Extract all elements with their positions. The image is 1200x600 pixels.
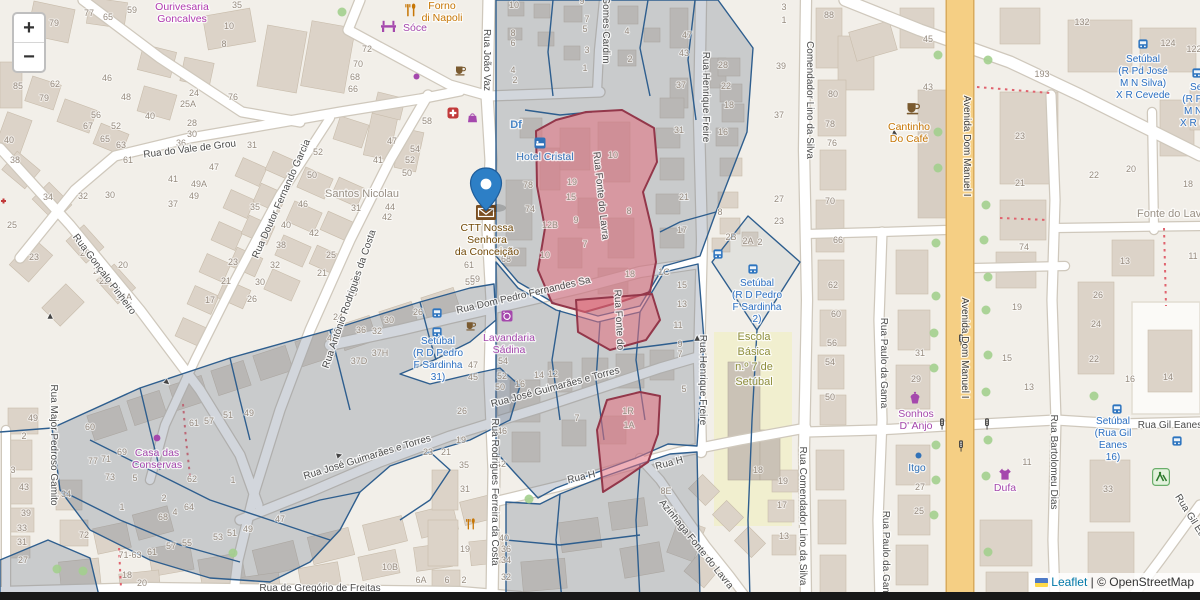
house-number: 41 [168, 174, 178, 184]
attribution-separator: | [1087, 575, 1097, 589]
house-number: 76 [228, 92, 238, 102]
street-label: Rua Gil Eanes [1138, 420, 1200, 431]
house-number: 26 [1093, 290, 1103, 300]
house-number: 47 [275, 514, 285, 524]
house-number: 77 [84, 8, 94, 18]
house-number: 37 [676, 80, 686, 90]
bottom-bar [0, 592, 1200, 600]
house-number: 50 [402, 168, 412, 178]
house-number: 68 [158, 512, 168, 522]
map-canvas: 85797765593510862794648566752402425A2830… [0, 0, 1200, 600]
house-number: 31 [17, 537, 27, 547]
poi-label: Dufa [994, 482, 1016, 494]
house-number: 16 [515, 379, 525, 389]
house-number: 12 [548, 369, 558, 379]
house-number: 10 [509, 0, 519, 10]
house-number: 65 [100, 134, 110, 144]
house-number: 26 [457, 406, 467, 416]
house-number: 3 [10, 465, 15, 475]
house-number: 33 [1103, 484, 1113, 494]
house-number: 14 [1163, 372, 1173, 382]
house-number: 23 [423, 447, 433, 457]
tree-icon [932, 292, 941, 301]
house-number: 12B [542, 220, 558, 230]
house-number: 20 [118, 260, 128, 270]
house-number: 49 [244, 408, 254, 418]
tree-icon [982, 472, 991, 481]
house-number: 8 [626, 206, 631, 216]
house-number: 48 [121, 92, 131, 102]
house-number: 80 [828, 89, 838, 99]
poi-label: Itgo [908, 462, 926, 474]
house-number: 54 [498, 356, 508, 366]
house-number: 32 [270, 260, 280, 270]
bus-stop-label: X R Cevede [1180, 118, 1200, 129]
house-number: 10 [224, 21, 234, 31]
poi-label: Lavandaria [483, 332, 535, 344]
house-number: 2B [725, 232, 736, 242]
poi-label: Cantinho [888, 121, 930, 133]
house-number: 24 [1091, 319, 1101, 329]
bus-stop-label: (R D Pedro [732, 290, 782, 301]
house-number: 34 [501, 555, 511, 565]
house-number: 26 [413, 307, 423, 317]
house-number: 30 [255, 277, 265, 287]
bus-stop-label: 2) [753, 314, 762, 325]
poi-label: n.º 7 de [735, 361, 773, 373]
zoom-out-button[interactable]: − [14, 43, 44, 71]
bus-stop-label: F Sardinha [414, 360, 463, 371]
house-number: 2 [161, 493, 166, 503]
house-number: 79 [49, 18, 59, 28]
house-number: 11 [1188, 251, 1197, 261]
house-number: 41 [373, 155, 383, 165]
house-number: 19 [1012, 302, 1022, 312]
house-number: 33 [17, 523, 27, 533]
house-number: 18 [724, 100, 734, 110]
house-number: 40 [145, 111, 155, 121]
house-number: 11 [673, 320, 682, 330]
tree-icon [984, 273, 993, 282]
tree-icon [930, 511, 939, 520]
tree-icon [1090, 392, 1099, 401]
tree-icon [338, 8, 347, 17]
bus-stop-label: (R Pd José [1182, 94, 1200, 105]
house-number: 65 [103, 12, 113, 22]
house-number: 32 [78, 191, 88, 201]
house-number: 5 [681, 384, 686, 394]
house-number: 51 [227, 528, 237, 538]
tree-icon [982, 306, 991, 315]
house-number: 18 [1183, 179, 1193, 189]
house-number: 18 [625, 269, 635, 279]
house-number: 6A [415, 575, 426, 585]
house-number: 132 [1074, 17, 1089, 27]
laundry-icon [502, 311, 513, 322]
house-number: 63 [116, 140, 126, 150]
house-number: 8E [660, 486, 671, 496]
house-number: 2 [757, 237, 762, 247]
house-number: 62 [50, 79, 60, 89]
house-number: 5 [132, 473, 137, 483]
house-number: 45 [468, 372, 478, 382]
house-number: 47 [209, 162, 219, 172]
street-label: Rua Rodrigues Ferreira da Costa [489, 418, 500, 566]
bus-stop-label: (Rua Gil [1095, 428, 1132, 439]
tree-icon [934, 128, 943, 137]
house-number: 17 [777, 500, 787, 510]
house-number: 22 [721, 81, 731, 91]
leaflet-link[interactable]: Leaflet [1051, 575, 1087, 589]
house-number: 31 [351, 203, 361, 213]
house-number: 20 [137, 578, 147, 588]
street-label: Rua João Vaz [481, 29, 492, 91]
house-number: 59 [470, 274, 480, 284]
house-number: 71-63 [118, 550, 141, 560]
house-number: 25 [914, 506, 924, 516]
tree-icon [934, 164, 943, 173]
bus-stop-label: Setúbal [1126, 54, 1160, 65]
tree-icon [930, 364, 939, 373]
house-number: 58 [422, 116, 432, 126]
oneway-arrow-icon: ▶ [694, 335, 701, 341]
poi-label: Do Café [890, 133, 929, 145]
bus-stop-label: 16) [1106, 452, 1120, 463]
street-label: Fonte do Lavra [1137, 208, 1200, 220]
street-label: Comendador Lino da Silva [804, 41, 815, 159]
poi-label: Sóce [403, 22, 427, 34]
poi-label: Sonhos [898, 408, 934, 420]
house-number: 6 [444, 575, 449, 585]
house-number: 52 [111, 121, 121, 131]
house-number: 193 [1034, 69, 1049, 79]
house-number: 16 [1125, 374, 1135, 384]
poi-label: Df [510, 119, 522, 131]
house-number: 13 [677, 299, 687, 309]
house-number: 47 [387, 136, 397, 146]
house-number: 42 [309, 228, 319, 238]
map-viewport[interactable]: 85797765593510862794648566752402425A2830… [0, 0, 1200, 600]
tree-icon [980, 236, 989, 245]
house-number: 38 [10, 155, 20, 165]
poi-label: Senhora [467, 234, 507, 246]
house-number: 27 [774, 194, 784, 204]
house-number: 35 [232, 0, 242, 10]
house-number: 22 [1089, 354, 1099, 364]
house-number: 57 [166, 541, 176, 551]
house-number: 50 [825, 392, 835, 402]
house-number: 49 [28, 413, 38, 423]
house-number: 21 [441, 447, 451, 457]
house-number: 35 [459, 460, 469, 470]
house-number: 60 [85, 422, 95, 432]
house-number: 22 [1089, 170, 1099, 180]
house-number: 17 [677, 225, 687, 235]
house-number: 3 [584, 45, 589, 55]
house-number: 32 [501, 572, 511, 582]
house-number: 30 [384, 315, 394, 325]
tree-icon [984, 56, 993, 65]
house-number: 60 [831, 309, 841, 319]
house-number: 61 [464, 260, 474, 270]
house-number: 17 [205, 295, 215, 305]
house-number: 37H [372, 348, 389, 358]
house-number: 54 [825, 357, 835, 367]
house-number: 23 [29, 252, 39, 262]
house-number: 21 [679, 192, 689, 202]
bus-stop-label: X R Cevede [1116, 90, 1170, 101]
house-number: 49A [191, 179, 207, 189]
bus-stop-label: (R Pd José [1118, 66, 1168, 77]
house-number: 28 [718, 60, 728, 70]
house-number: 8 [510, 28, 515, 38]
house-number: 7 [574, 413, 579, 423]
house-number: 7 [677, 349, 682, 359]
street-label: Avenida Dom Manuel I [961, 96, 972, 197]
tree-icon [982, 201, 991, 210]
house-number: 4 [624, 26, 629, 36]
bus-stop-icon [1192, 68, 1200, 77]
house-number: 1 [230, 475, 235, 485]
house-number: 13 [1120, 256, 1130, 266]
house-number: 72 [362, 44, 372, 54]
bus-stop-icon [432, 308, 441, 317]
house-number: 62 [828, 280, 838, 290]
house-number: 43 [679, 48, 689, 58]
house-number: 31 [460, 484, 470, 494]
house-number: 28 [187, 118, 197, 128]
bus-stop-label: (R D Pedro [413, 348, 463, 359]
house-number: 61 [189, 418, 199, 428]
house-number: 49 [243, 524, 253, 534]
house-number: 27 [915, 482, 925, 492]
house-number: 39 [21, 508, 31, 518]
dotb-icon [916, 453, 922, 459]
street-label: Rua Henrique Freire [700, 52, 711, 143]
house-number: 55 [182, 538, 192, 548]
house-number: 15 [677, 280, 687, 290]
house-number: 2 [627, 54, 632, 64]
street-label: Santos Nicolau [325, 188, 399, 200]
house-number: 66 [348, 84, 358, 94]
poi-label: CTT Nossa [461, 222, 514, 234]
house-number: 11 [1022, 457, 1031, 467]
house-number: 79 [39, 93, 49, 103]
house-number: 24 [189, 88, 199, 98]
poi-label: Setúbal [735, 376, 772, 388]
house-number: 31 [247, 140, 257, 150]
house-number: 37D [351, 356, 368, 366]
house-number: 51 [223, 410, 233, 420]
tree-icon [934, 51, 943, 60]
house-number: 5 [582, 24, 587, 34]
poi-label: Casa das [135, 447, 179, 459]
house-number: 71 [101, 454, 111, 464]
house-number: 7 [584, 14, 589, 24]
zoom-control: + − [12, 12, 46, 73]
house-number: 8 [221, 39, 226, 49]
house-number: 56 [91, 110, 101, 120]
street-label: Rua Paulo da Gama [878, 318, 889, 409]
bus-stop-icon [1138, 39, 1147, 48]
house-number: 59 [127, 5, 137, 15]
street-label: Rua Comendador Lino da Silva [797, 447, 808, 586]
bus-stop-label: Eanes [1099, 440, 1127, 451]
tree-icon [932, 239, 941, 248]
house-number: 88 [824, 10, 834, 20]
street-label: Rua Bartolomeu Dias [1048, 414, 1059, 509]
poi-label: Goncalves [157, 13, 207, 25]
house-number: 85 [13, 81, 23, 91]
attribution-bar: Leaflet | © OpenStreetMap [1029, 573, 1200, 592]
bus-stop-icon [713, 249, 722, 258]
house-number: 2 [461, 575, 466, 585]
house-number: 36 [356, 325, 366, 335]
house-number: 38 [276, 240, 286, 250]
house-number: 31 [915, 348, 925, 358]
house-number: 30 [105, 190, 115, 200]
bus-stop-label: Setúbal [421, 336, 455, 347]
house-number: 37 [168, 199, 178, 209]
poi-label: Sádina [493, 344, 526, 356]
house-number: 21 [1015, 178, 1025, 188]
house-number: 122 [1186, 44, 1200, 54]
house-number: 26 [247, 294, 257, 304]
bus-stop-label: M N Silva) [1120, 78, 1166, 89]
bus-stop-icon [1112, 404, 1121, 413]
house-number: 13 [779, 531, 789, 541]
zoom-in-button[interactable]: + [14, 14, 44, 42]
street-label: Rua Paulo da Gama [880, 511, 891, 600]
ukraine-flag-icon [1035, 578, 1048, 587]
house-number: 23 [774, 216, 784, 226]
bus-stop-icon [748, 264, 757, 273]
house-number: 52 [405, 155, 415, 165]
house-number: 70 [353, 59, 363, 69]
house-number: 44 [385, 202, 395, 212]
poi-label: Hotel Cristal [516, 151, 573, 163]
tree-icon [984, 351, 993, 360]
house-number: 13 [1024, 382, 1034, 392]
house-number: 77 [88, 456, 98, 466]
bus-stop-label: Setúbal [740, 278, 774, 289]
house-number: 19 [460, 544, 470, 554]
poi-label: di Napoli [422, 12, 463, 24]
house-number: 10 [608, 150, 618, 160]
house-number: 67 [83, 121, 93, 131]
tree-icon [525, 495, 534, 504]
house-number: 7 [582, 239, 587, 249]
house-number: 2 [21, 431, 26, 441]
dotp-icon [414, 74, 420, 80]
house-number: 39 [776, 61, 786, 71]
house-number: 37 [774, 110, 784, 120]
poi-label: D' Anjo [900, 420, 933, 432]
poi-label: Básica [737, 346, 771, 358]
house-number: 66 [833, 235, 843, 245]
house-number: 4 [510, 65, 515, 75]
play-icon [1153, 469, 1170, 486]
poi-label: Conservas [132, 459, 182, 471]
house-number: 9 [579, 0, 584, 6]
house-number: 50 [495, 382, 505, 392]
pharm-icon [448, 108, 459, 119]
house-number: 73 [105, 472, 115, 482]
house-number: 14 [534, 370, 544, 380]
bus-stop-label: Setúbal [1096, 416, 1130, 427]
openstreetmap-link[interactable]: © OpenStreetMap [1097, 575, 1194, 589]
bus-stop-label: 31) [431, 372, 445, 383]
house-number: 31 [674, 125, 684, 135]
house-number: 1 [582, 63, 587, 73]
house-number: 21 [221, 276, 231, 286]
tree-icon [984, 436, 993, 445]
house-number: 43 [19, 482, 29, 492]
house-number: 78 [825, 119, 835, 129]
poi-label: Ourivesaria [155, 1, 209, 13]
bus-stop-label: Setúbal [1190, 82, 1200, 93]
house-number: 36 [501, 544, 511, 554]
house-number: 46 [298, 199, 308, 209]
house-number: 23 [1015, 131, 1025, 141]
poi-label: da Conceição [455, 246, 519, 258]
house-number: 9 [573, 215, 578, 225]
house-number: 1A [623, 420, 634, 430]
poi-label: Escola [737, 331, 771, 343]
house-number: 52 [313, 147, 323, 157]
house-number: 25 [7, 220, 17, 230]
oneway-arrow-icon: ▶ [47, 313, 54, 319]
house-number: 32 [372, 326, 382, 336]
tree-icon [932, 441, 941, 450]
house-number: 40 [4, 135, 14, 145]
house-number: 35 [250, 202, 260, 212]
house-number: 43 [923, 82, 933, 92]
house-number: 61 [147, 547, 157, 557]
house-number: 46 [102, 73, 112, 83]
house-number: 10B [382, 562, 398, 572]
house-number: 1R [622, 406, 634, 416]
hotel-icon [535, 138, 546, 149]
house-number: 27 [18, 555, 28, 565]
house-number: 25 [326, 250, 336, 260]
dotp-icon [154, 435, 161, 442]
house-number: 54 [410, 144, 420, 154]
house-number: 6 [510, 38, 515, 48]
street-label: Rua Major Pedroso Gamito [48, 384, 59, 506]
house-number: 47 [682, 30, 692, 40]
house-number: 23 [228, 257, 238, 267]
house-number: 124 [1160, 38, 1175, 48]
house-number: 34 [61, 489, 71, 499]
house-number: 74 [1019, 242, 1029, 252]
house-number: 19 [567, 177, 577, 187]
tree-icon [53, 565, 62, 574]
house-number: 47 [468, 360, 478, 370]
house-number: 20 [1126, 164, 1136, 174]
house-number: 1 [781, 15, 786, 25]
house-number: 8 [717, 207, 722, 217]
house-number: 19 [778, 476, 788, 486]
house-number: 52 [497, 371, 507, 381]
house-number: 70 [825, 196, 835, 206]
house-number: 42 [382, 212, 392, 222]
house-number: 15 [1002, 353, 1012, 363]
bus-stop-label: F Sardinha [733, 302, 782, 313]
tree-icon [932, 476, 941, 485]
bus-stop-icon [1172, 436, 1181, 445]
house-number: 16 [718, 127, 728, 137]
